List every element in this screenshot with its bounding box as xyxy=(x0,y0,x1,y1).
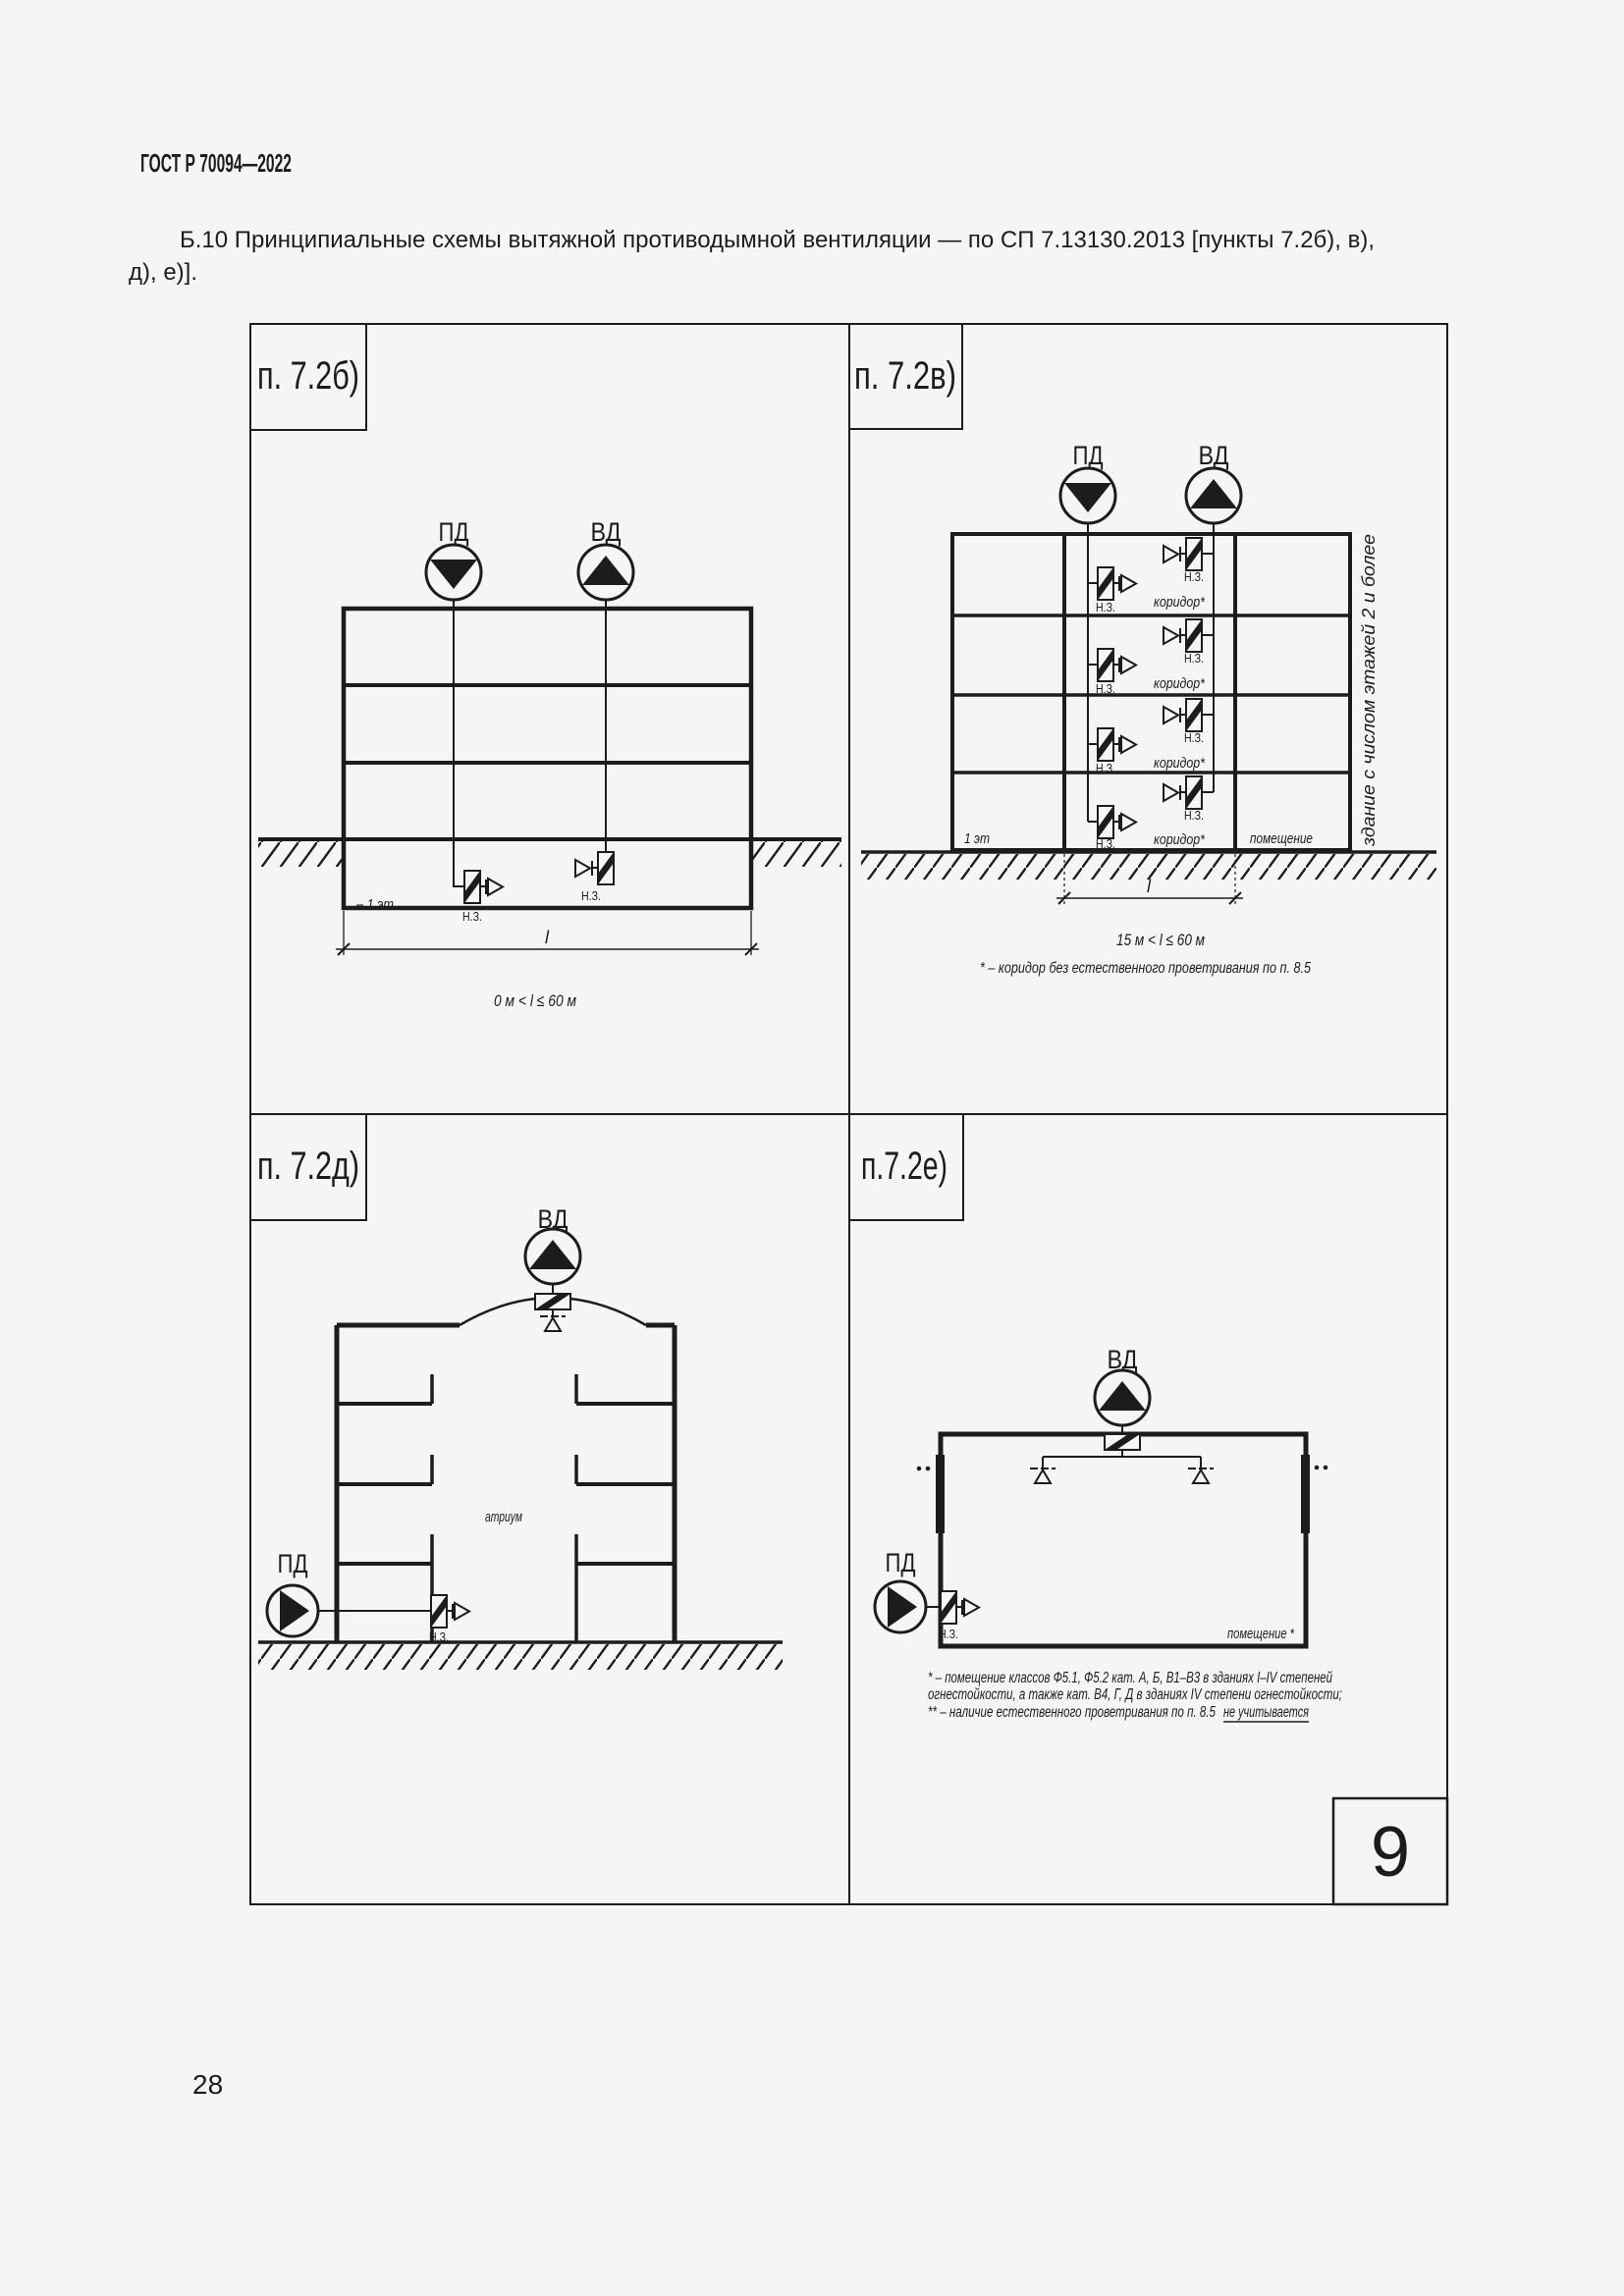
corridor-label: коридор* xyxy=(1154,831,1206,848)
supply-fan-icon xyxy=(426,545,481,600)
figure-b10: п. 7.2б) ПД ВД Н.З. Н.З. – 1 эт l 0 м < … xyxy=(0,0,1624,2296)
nz-label: Н.З. xyxy=(1096,837,1115,851)
exhaust-fan-icon xyxy=(578,545,633,600)
fire-damper-icon xyxy=(941,1591,979,1624)
panel-7-2e-footnote-1: * – помещение классов Ф5.1, Ф5.2 кат. А,… xyxy=(928,1670,1332,1686)
supply-fan-icon xyxy=(875,1581,926,1632)
panel-7-2e: п.7.2е) ВД ПД Н.З. помещение * * – помещ… xyxy=(849,1114,1447,1904)
panel-7-2d-title: п. 7.2д) xyxy=(257,1145,359,1188)
room-outline xyxy=(941,1434,1306,1646)
opening-dots xyxy=(1315,1466,1320,1470)
supply-fan-icon xyxy=(267,1585,318,1636)
basement-floor-label: – 1 эт xyxy=(355,896,394,913)
exhaust-fan-label: ВД xyxy=(1199,441,1229,470)
panel-7-2b-title: п. 7.2б) xyxy=(257,354,359,398)
panel-7-2v-title: п. 7.2в) xyxy=(854,354,956,398)
panel-7-2e-footnote-3: ** – наличие естественного проветривания… xyxy=(928,1704,1216,1721)
supply-duct xyxy=(454,600,464,886)
supply-fan-icon xyxy=(1060,468,1115,523)
supply-fan-label: ПД xyxy=(886,1548,916,1577)
corridor-label: коридор* xyxy=(1154,594,1206,611)
first-floor-label: 1 эт xyxy=(964,830,990,847)
nz-label: Н.З. xyxy=(1184,731,1204,745)
corridor-label: коридор* xyxy=(1154,755,1206,772)
building-outline xyxy=(952,534,1350,850)
exhaust-fan-icon xyxy=(1186,468,1241,523)
panel-7-2v-side-note: здание с числом этажей 2 и более xyxy=(1359,534,1379,847)
fire-damper-icon xyxy=(1098,728,1136,761)
ground-hatch xyxy=(753,841,841,867)
opening-dots xyxy=(1324,1466,1328,1470)
corridor-label: коридор* xyxy=(1154,675,1206,692)
nz-label: Н.З. xyxy=(1096,601,1115,614)
room-label: помещение * xyxy=(1227,1626,1295,1642)
room-label: помещение xyxy=(1250,830,1313,847)
opening-dots xyxy=(926,1467,931,1471)
opening-dots xyxy=(917,1467,922,1471)
supply-fan-label: ПД xyxy=(1073,441,1104,470)
fire-damper-icon xyxy=(1098,567,1136,600)
fire-damper-icon xyxy=(575,852,614,884)
nz-label: Н.З. xyxy=(939,1628,958,1641)
smoke-intake-icon xyxy=(540,1316,566,1331)
exhaust-fan-icon xyxy=(525,1229,580,1284)
fire-damper-icon xyxy=(431,1595,469,1628)
smoke-intake-icon xyxy=(1188,1468,1214,1483)
smoke-intake-icon xyxy=(1030,1468,1056,1483)
roof-damper-icon xyxy=(535,1294,570,1309)
panel-7-2v: п. 7.2в) ПД ВД Н.З. Н.З. коридор* Н.З. Н… xyxy=(849,324,1436,977)
panel-7-2b-caption: 0 м < l ≤ 60 м xyxy=(494,991,576,1010)
nz-label: Н.З. xyxy=(462,910,482,924)
nz-label: Н.З. xyxy=(1096,762,1115,775)
panel-7-2d: п. 7.2д) ВД атриум ПД Н.З. xyxy=(250,1114,783,1670)
nz-label: Н.З. xyxy=(581,889,601,903)
nz-label: Н.З. xyxy=(1184,809,1204,823)
fire-damper-icon xyxy=(1164,538,1202,570)
dimension-label: l xyxy=(545,928,550,947)
nz-label: Н.З. xyxy=(1184,570,1204,584)
panel-7-2v-caption: 15 м < l ≤ 60 м xyxy=(1116,931,1205,949)
fire-damper-icon xyxy=(1164,776,1202,809)
building-outline xyxy=(344,609,751,908)
fire-damper-icon xyxy=(1164,699,1202,731)
exhaust-fan-icon xyxy=(1095,1370,1150,1425)
exhaust-fan-label: ВД xyxy=(591,517,622,547)
wall-opening xyxy=(936,1455,945,1533)
panel-7-2v-footnote: * – коридор без естественного проветрива… xyxy=(980,960,1311,977)
supply-fan-label: ПД xyxy=(278,1549,308,1578)
figure-number: 9 xyxy=(1371,1813,1410,1892)
supply-fan-label: ПД xyxy=(439,517,469,547)
roof-damper-icon xyxy=(1105,1434,1140,1450)
panel-7-2e-footnote-2: огнестойкости, а также кат. В4, Г, Д в з… xyxy=(928,1686,1342,1703)
fire-damper-icon xyxy=(464,871,503,903)
fire-damper-icon xyxy=(1164,619,1202,652)
panel-7-2e-title: п.7.2е) xyxy=(861,1145,947,1188)
panel-7-2e-footnote-3-underlined: не учитывается xyxy=(1223,1704,1309,1721)
panel-7-2b: п. 7.2б) ПД ВД Н.З. Н.З. – 1 эт l 0 м < … xyxy=(250,324,841,1010)
nz-label: Н.З. xyxy=(1184,652,1204,666)
nz-label: Н.З. xyxy=(1096,682,1115,696)
ground-hatch xyxy=(258,1644,783,1670)
fire-damper-icon xyxy=(1098,806,1136,838)
ground-hatch xyxy=(258,841,344,867)
atrium-label: атриум xyxy=(485,1509,522,1525)
fire-damper-icon xyxy=(1098,649,1136,681)
wall-opening xyxy=(1301,1455,1310,1533)
